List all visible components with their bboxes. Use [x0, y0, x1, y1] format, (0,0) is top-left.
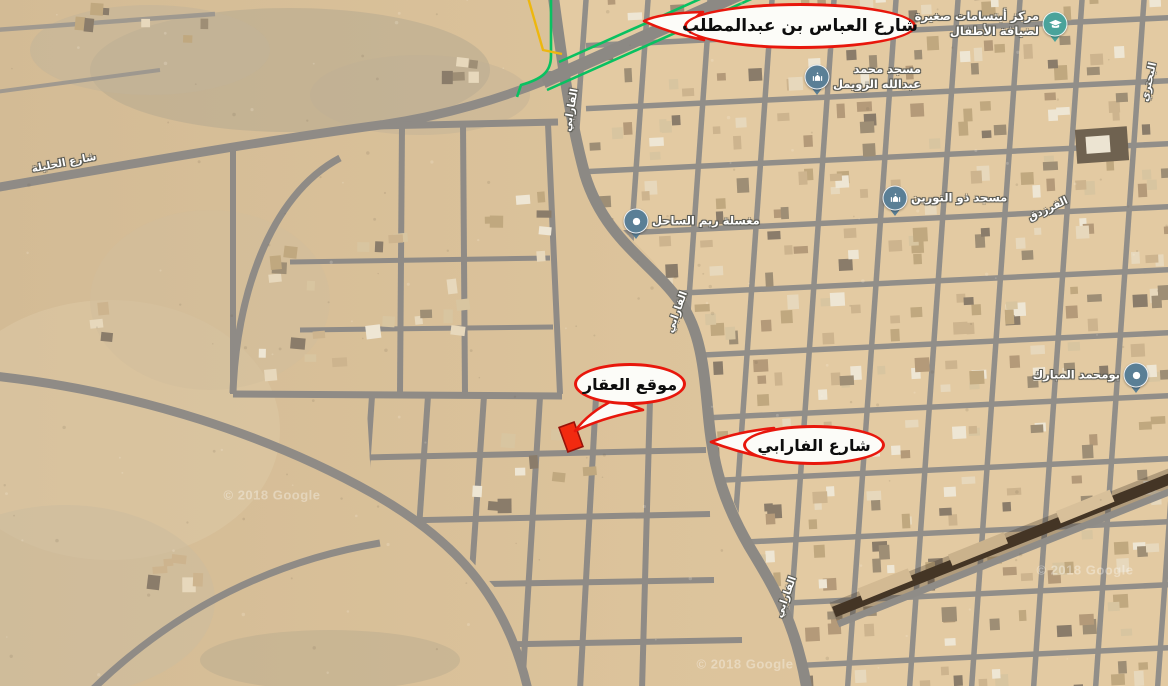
- poi-mosque-nurayn-label: مسجد ذو النورين: [911, 191, 1007, 206]
- farabi-street-label-1: الفارابي: [561, 88, 580, 133]
- poi-bu-mohammed-label: بومحمد المبارك: [1033, 368, 1120, 383]
- mosque-icon: [805, 65, 830, 90]
- farabi-street-label-2: الفارابي: [664, 290, 690, 335]
- buhturi-street-label: البحتري: [1139, 61, 1159, 102]
- dot-icon: [1124, 363, 1149, 388]
- halila-street-label: شارع الحليلة: [31, 151, 98, 175]
- property-location-callout: موقع العقار: [574, 363, 686, 405]
- google-watermark: © 2018 Google: [224, 488, 321, 503]
- poi-laundry-reem-label: مغسلة ريم الساحل: [652, 214, 760, 229]
- satellite-map[interactable]: شارع الحليلةالفارابيالفارابيالفارابيالفر…: [0, 0, 1168, 686]
- dot-icon: [624, 209, 649, 234]
- poi-children-center-label: مركز أبتسامات صغيرةلضيافة الأطفال: [915, 9, 1039, 39]
- poi-mosque-zuwaimel-label: مسجد محمدعبدالله الزويمل: [833, 62, 921, 92]
- mosque-icon: [883, 186, 908, 211]
- farabi-street-callout: شارع الفارابي: [743, 425, 885, 465]
- google-watermark: © 2018 Google: [697, 657, 794, 672]
- google-watermark: © 2018 Google: [1037, 563, 1134, 578]
- abbas-street-callout: شارع العباس بن عبدالمطلب: [684, 3, 916, 49]
- farazdaq-street-label: الفرزدق: [1026, 195, 1070, 224]
- farabi-street-label-3: الفارابي: [773, 575, 799, 620]
- school-icon: [1043, 12, 1068, 37]
- map-annotations: شارع الحليلةالفارابيالفارابيالفارابيالفر…: [0, 0, 1168, 686]
